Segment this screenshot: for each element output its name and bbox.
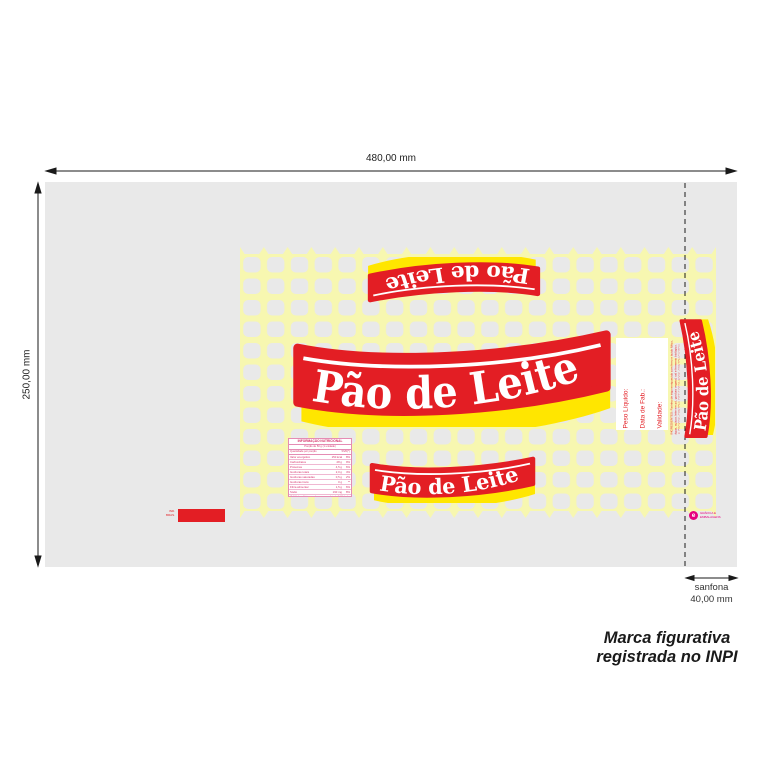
red-print-block: [178, 509, 225, 522]
nutrition-table: INFORMAÇÃO NUTRICIONAL Porção de 50 g (1…: [288, 438, 352, 497]
height-dimension-label: 250,00 mm: [22, 320, 33, 430]
printer-logo: e GRÁFICA E EMBALAGENS: [689, 509, 729, 523]
trademark-line1: Marca figurativa: [572, 629, 762, 648]
brand-banner-small: [367, 456, 537, 503]
printer-name: GRÁFICA E EMBALAGENS: [700, 512, 721, 520]
printer-logo-icon: e: [689, 511, 698, 520]
brand-banner-main: [288, 329, 614, 427]
sanfona-dimension-label: sanfona 40,00 mm: [659, 582, 764, 606]
mfg-date-label: Data de Fab.:: [635, 337, 652, 429]
net-weight-label: Peso Líquido:: [618, 337, 635, 429]
col-quantity: Quantidade por porção: [289, 450, 340, 454]
validity-label: Validade:: [652, 337, 669, 429]
brand-banner-top-flipped: [366, 257, 543, 303]
brand-banner-side-vertical: [679, 318, 715, 440]
trademark-line2: registrada no INPI: [572, 648, 762, 667]
packaging-proof-sheet: Pão de Leite: [0, 0, 768, 768]
nutrition-footnote: (*) % Valores Diários com base em uma di…: [289, 495, 351, 497]
trademark-note: Marca figurativa registrada no INPI: [572, 629, 762, 668]
sanfona-word: sanfona: [659, 582, 764, 594]
width-dimension-label: 480,00 mm: [45, 153, 737, 164]
sanfona-size: 40,00 mm: [659, 594, 764, 606]
col-daily-value: %VD(*): [340, 450, 351, 454]
small-print: IND. BRAS.: [148, 509, 175, 517]
fill-in-panel-text: Peso Líquido: Data de Fab.: Validade:: [618, 337, 670, 432]
